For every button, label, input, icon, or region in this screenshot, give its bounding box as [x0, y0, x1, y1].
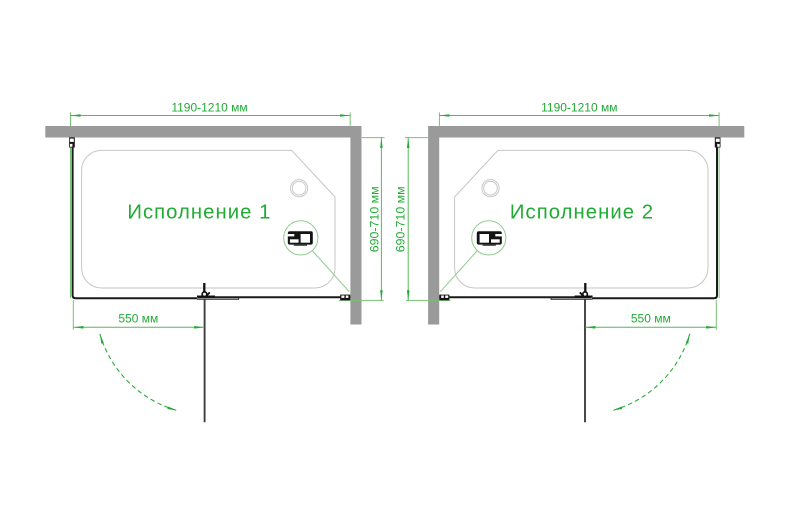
svg-text:690-710 мм: 690-710 мм — [368, 186, 382, 252]
svg-text:Исполнение 2: Исполнение 2 — [510, 202, 654, 224]
svg-text:550 мм: 550 мм — [118, 312, 158, 326]
svg-text:1190-1210 мм: 1190-1210 мм — [171, 101, 247, 115]
svg-text:1190-1210 мм: 1190-1210 мм — [541, 101, 617, 115]
svg-text:550 мм: 550 мм — [631, 312, 671, 326]
svg-text:690-710 мм: 690-710 мм — [393, 186, 407, 252]
svg-text:Исполнение 1: Исполнение 1 — [127, 202, 271, 224]
